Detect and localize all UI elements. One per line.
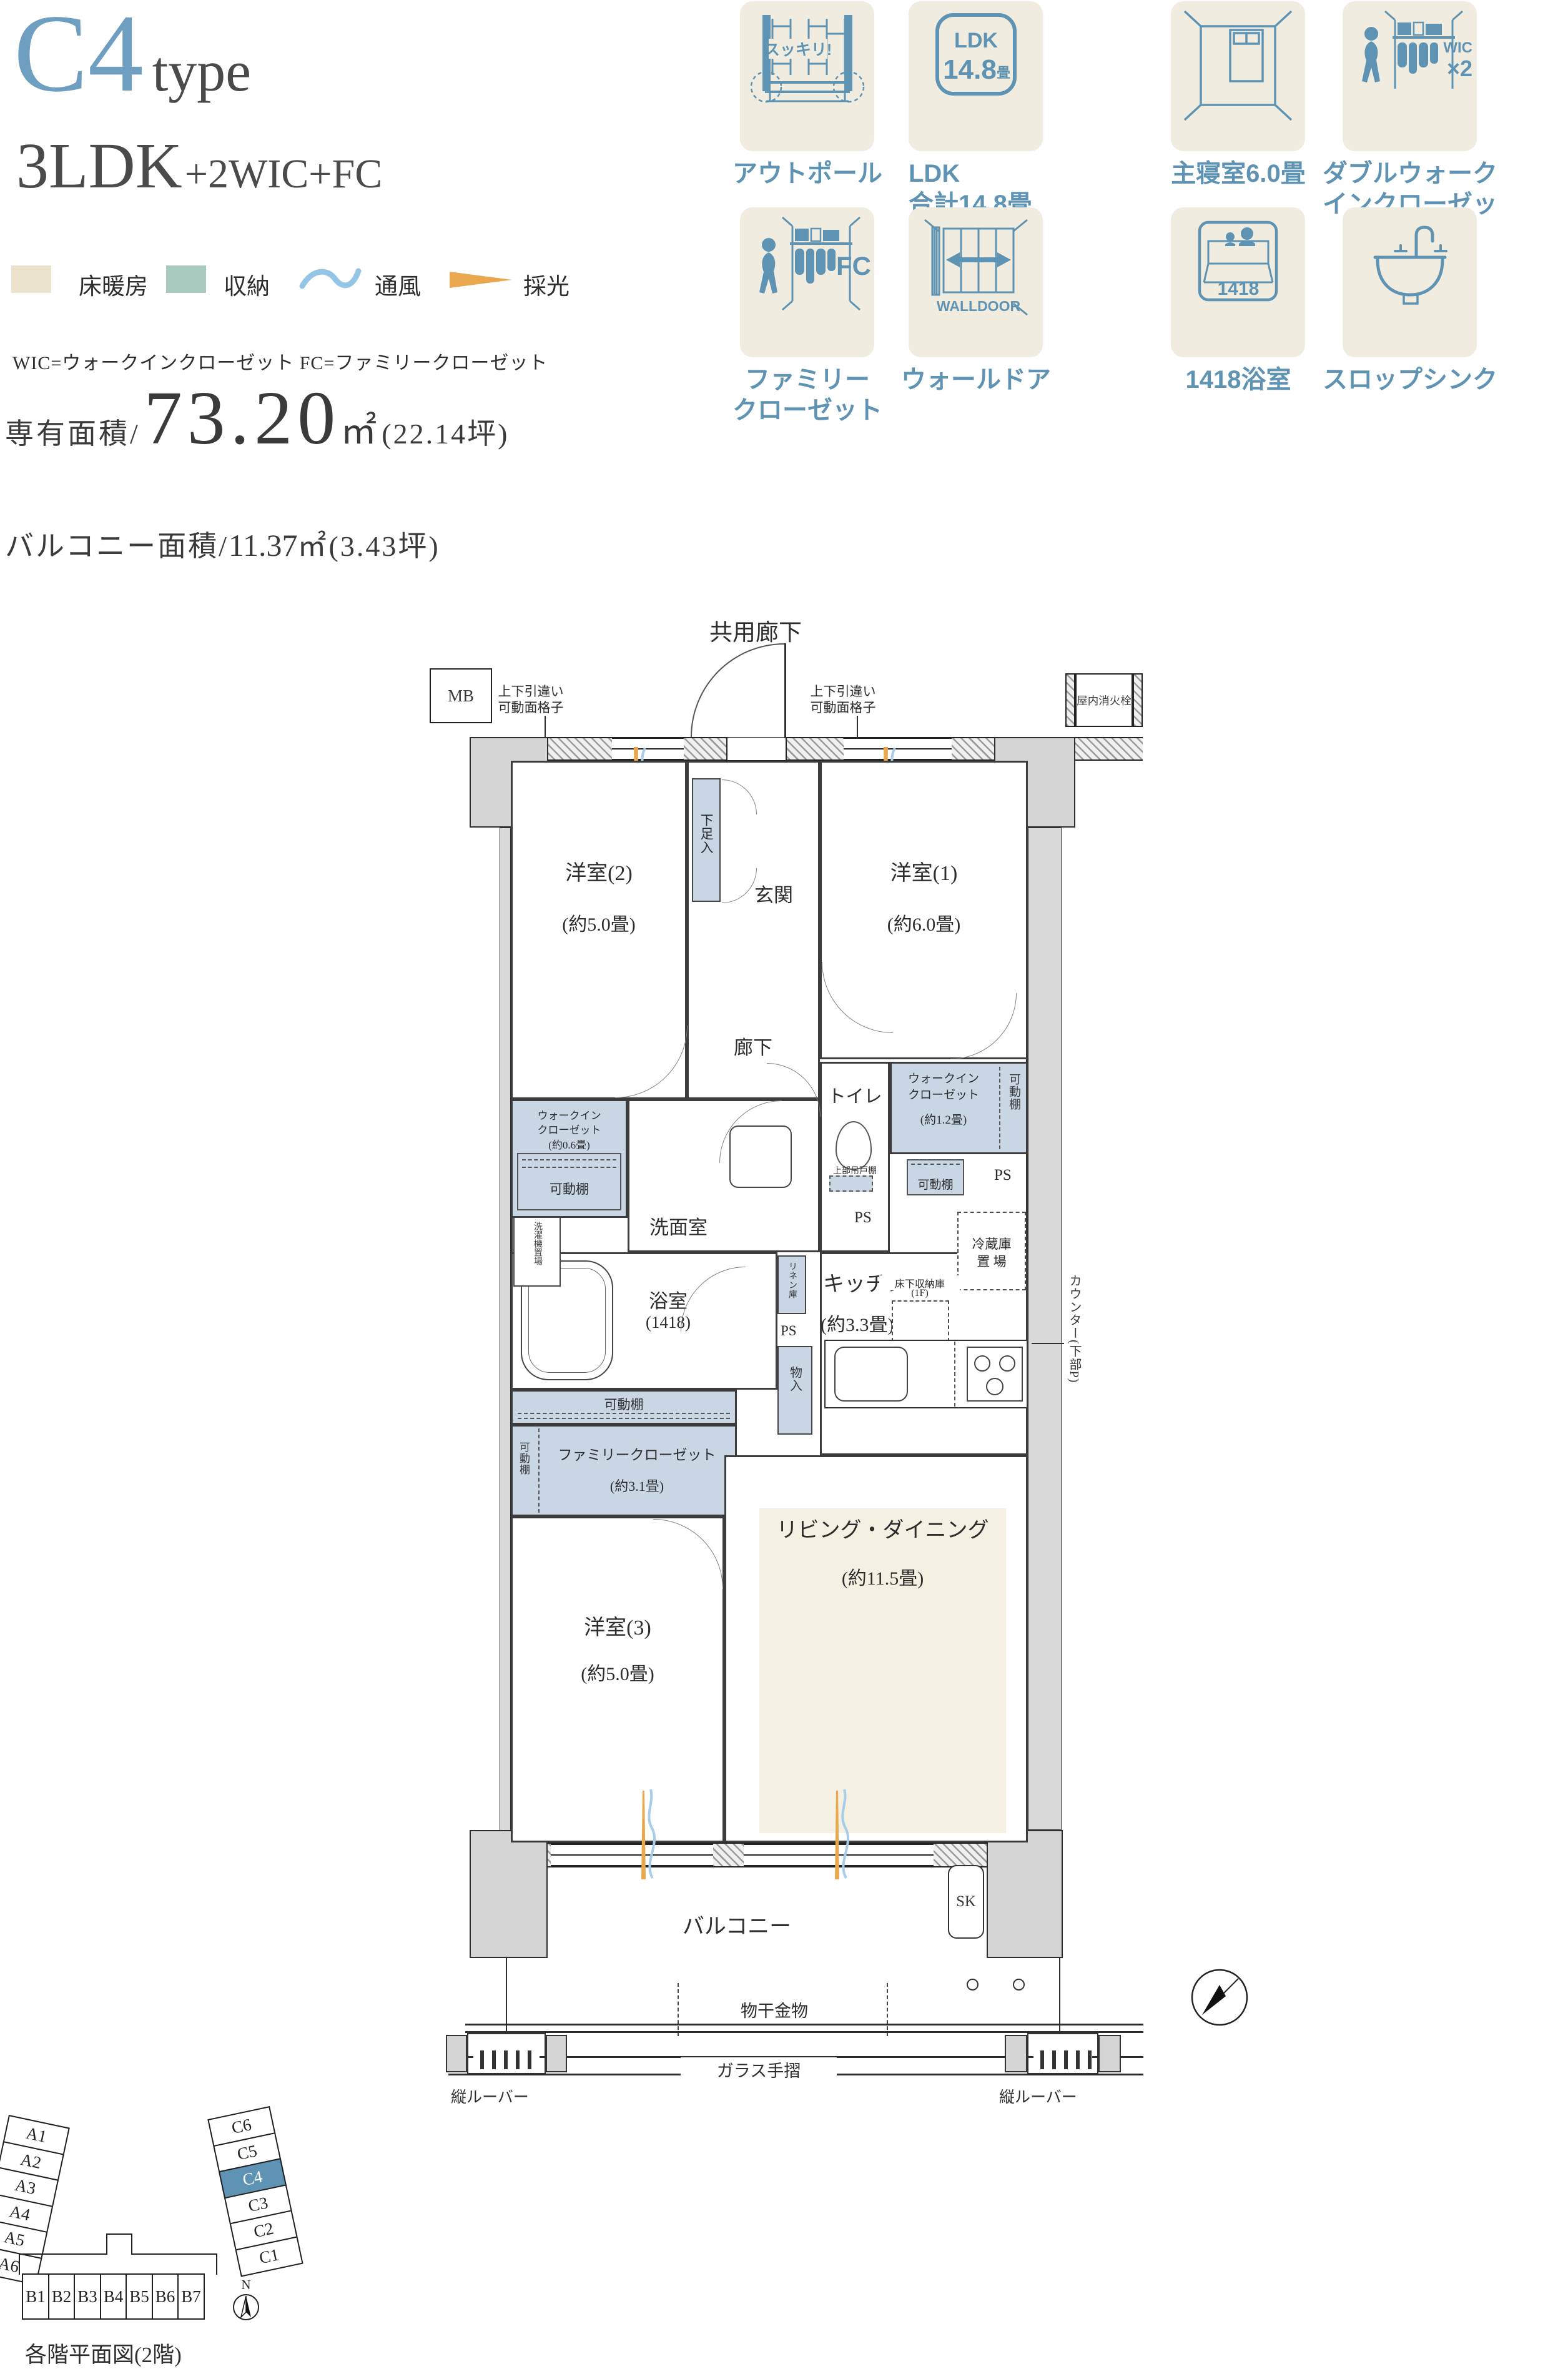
feature-label-outpole: アウトポール — [720, 159, 895, 189]
unit-cell-b4: B4 — [100, 2273, 127, 2320]
louver-left — [467, 2033, 546, 2074]
washroom-label: 洗面室 — [649, 1212, 708, 1240]
minimap-compass-icon — [232, 2293, 260, 2324]
counter-callout-line — [1032, 1343, 1064, 1344]
wic12-shelf-label: 可動棚 — [1005, 1073, 1022, 1110]
ps-label-linen: PS — [781, 1323, 797, 1339]
unit-b4-label: B4 — [104, 2287, 124, 2307]
feature-card-bedroom — [1171, 1, 1305, 151]
common-corridor-label: 共用廊下 — [662, 613, 849, 647]
drying-tick-left — [678, 1983, 679, 2036]
floor-heating-area — [759, 1508, 1006, 1833]
kitchen-size: (約3.3畳) — [821, 1309, 894, 1337]
wic06-size: (約0.6畳) — [511, 1136, 628, 1152]
balcony-area-label: バルコニー面積/ — [5, 523, 229, 565]
west-wall — [500, 828, 511, 1842]
louver-label-right: 縦ルーバー — [999, 2085, 1077, 2107]
feature-label-slopsink: スロップシンク — [1323, 365, 1497, 395]
fridge-label-1: 冷蔵庫 — [959, 1234, 1025, 1253]
fire-hydrant-label: 屋内消火栓 — [1077, 693, 1132, 708]
wic06-line2: クローゼット — [511, 1121, 628, 1137]
unit-a4-label: A4 — [7, 2202, 32, 2225]
wic12-shelf-dash-line — [999, 1067, 1000, 1149]
unit-b5-label: B5 — [129, 2287, 149, 2307]
living-dining-name: リビング・ダイニング — [759, 1513, 1006, 1543]
b-row: B1 B2 B3 B4 B5 B6 B7 — [22, 2273, 205, 2320]
feature-label-fc-line1: ファミリー — [720, 365, 895, 395]
wic12-size: (約1.2畳) — [890, 1110, 997, 1127]
grille-note-right-line2: 可動面格子 — [796, 700, 890, 716]
kitchen-stove — [967, 1347, 1023, 1402]
meter-box-label: MB — [448, 686, 474, 706]
vent-daylight-mark-room3 — [632, 1785, 659, 1882]
unit-cell-b1: B1 — [22, 2273, 49, 2320]
room3-name: 洋室(3) — [511, 1610, 724, 1641]
linen-closet: リネン庫 — [777, 1255, 806, 1314]
stove-burner-2 — [999, 1355, 1015, 1372]
walldoor-icon: WALLDOOR — [909, 207, 1043, 357]
svg-text:FC: FC — [836, 251, 871, 280]
svg-text:WIC: WIC — [1443, 39, 1472, 56]
slop-sink-icon — [1343, 207, 1477, 357]
toilet-upper-cabinet-box — [829, 1175, 873, 1192]
feature-label-ldk-line1: LDK — [909, 159, 1083, 189]
grille-pointer-left — [545, 716, 546, 738]
toilet-upper-cabinet-label: 上部吊戸棚 — [820, 1164, 890, 1177]
walk-in-closet-x2-icon: WIC ×2 — [1343, 1, 1477, 151]
feature-card-walldoor: WALLDOOR — [909, 207, 1043, 357]
svg-text:WALLDOOR: WALLDOOR — [937, 298, 1021, 314]
shoe-cabinet: 下足入 — [692, 778, 721, 902]
unit-c4-label: C4 — [241, 2167, 264, 2190]
svg-text:スッキリ!: スッキリ! — [764, 41, 832, 59]
room1-name: 洋室(1) — [820, 856, 1028, 886]
north-compass-icon — [1190, 1967, 1250, 2030]
kitchen-sink — [834, 1347, 908, 1402]
floorplan-page: { "title":{"code":"C4","word":"type","pl… — [0, 0, 1568, 2374]
balcony-area-line: バルコニー面積/ 11.37 ㎡ (3.43坪) — [5, 523, 440, 565]
louver-cap-3 — [1005, 2035, 1027, 2072]
counter-divider — [954, 1342, 955, 1407]
balcony-area-tsubo: (3.43坪) — [329, 523, 440, 565]
outpole-icon: スッキリ! — [740, 1, 874, 151]
hydrant-flank-right — [1133, 673, 1143, 727]
svg-text:畳: 畳 — [997, 65, 1010, 81]
c-wing: C6 C5 C4 C3 C2 C1 — [207, 2106, 303, 2277]
balcony-label: バルコニー — [643, 1909, 831, 1941]
wic12-line2: クローゼット — [890, 1086, 997, 1102]
floor-plan: 共用廊下 MB 屋内消火栓 上下引違い 可動面格子 上下引違い 可動面格子 — [0, 593, 1568, 2130]
grille-note-left-line2: 可動面格子 — [484, 700, 578, 716]
unit-cell-b6: B6 — [152, 2273, 179, 2320]
wic06-shelf-label: 可動棚 — [518, 1179, 620, 1198]
unit-c1-label: C1 — [257, 2245, 280, 2268]
shelf-box-right: 可動棚 — [907, 1159, 964, 1195]
feature-label-bedroom: 主寝室6.0畳 — [1151, 159, 1326, 189]
unit-a2-label: A2 — [19, 2149, 43, 2172]
small-closet: 物入 — [777, 1346, 812, 1435]
feature-label-fc: ファミリー クローゼット — [720, 365, 895, 426]
family-closet-icon: FC — [740, 207, 874, 357]
keymap-caption: 各階平面図(2階) — [25, 2337, 182, 2369]
feature-card-bath: 1418 — [1171, 207, 1305, 357]
drain-circle-2 — [1013, 1979, 1025, 1991]
shelf-box-right-dashes — [911, 1164, 960, 1170]
entrance-door-arc — [691, 643, 784, 737]
louver-cap-4 — [1098, 2035, 1121, 2072]
entrance-door-leaf — [784, 643, 786, 738]
louver-label-left: 縦ルーバー — [451, 2085, 529, 2107]
svg-text:LDK: LDK — [954, 29, 998, 52]
shelf-box-right-label: 可動棚 — [908, 1175, 963, 1192]
feature-card-slopsink — [1343, 207, 1477, 357]
unit-cell-b2: B2 — [48, 2273, 76, 2320]
feature-label-dwic-line1: ダブルウォーク — [1323, 159, 1497, 189]
wic06-shelf-dashes — [522, 1159, 616, 1168]
louver-cap-1 — [446, 2035, 467, 2072]
unit-c2-label: C2 — [252, 2218, 275, 2242]
counter-label: カウンター(下部P) — [1065, 1274, 1083, 1437]
stove-burner-1 — [974, 1355, 990, 1372]
small-closet-label: 物入 — [786, 1366, 804, 1392]
drying-tick-right — [887, 1983, 888, 2036]
family-closet-size: (約3.1畳) — [543, 1475, 731, 1495]
entrance-label: 玄関 — [754, 879, 793, 908]
slop-sink-label: SK — [956, 1893, 976, 1911]
fc-shelf-band-label: 可動棚 — [511, 1395, 737, 1413]
vent-daylight-mark-living — [826, 1785, 853, 1882]
minimap-north-label: N — [232, 2277, 260, 2293]
slop-sink-fixture: SK — [948, 1865, 984, 1939]
fc-left-shelf-dash — [538, 1428, 540, 1513]
unit-b6-label: B6 — [155, 2287, 175, 2307]
shoe-cabinet-label: 下足入 — [697, 813, 716, 854]
glass-rail-label: ガラス手摺 — [681, 2057, 837, 2082]
balcony-side-line-right — [1059, 1958, 1060, 2033]
room1-size: (約6.0畳) — [820, 909, 1028, 936]
grille-note-right-line1: 上下引違い — [796, 683, 890, 700]
main-bedroom-icon — [1171, 1, 1305, 151]
louver-right — [1027, 2033, 1098, 2074]
laundry-label: 洗濯機置場 — [531, 1222, 543, 1265]
unit-a1-label: A1 — [24, 2124, 49, 2147]
fridge-label-2: 置 場 — [959, 1252, 1025, 1270]
east-wall — [1028, 828, 1062, 1830]
grille-note-right: 上下引違い 可動面格子 — [796, 683, 890, 716]
feature-card-ldk: LDK 14.8 畳 — [909, 1, 1043, 151]
grille-pointer-right — [857, 716, 858, 738]
laundry-space: 洗濯機置場 — [513, 1217, 561, 1287]
living-dining-size: (約11.5畳) — [759, 1563, 1006, 1590]
pillar-bottom-right — [987, 1830, 1063, 1958]
wic06-line1: ウォークイン — [511, 1107, 628, 1122]
room2-size: (約5.0畳) — [511, 909, 687, 936]
grille-note-left-line1: 上下引違い — [484, 683, 578, 700]
fridge-space: 冷蔵庫 置 場 — [957, 1212, 1026, 1290]
ps-label-mid: PS — [854, 1209, 872, 1227]
corridor-notch — [106, 2233, 132, 2255]
unit-a3-label: A3 — [13, 2175, 37, 2198]
family-closet — [511, 1425, 737, 1516]
meter-box: MB — [430, 668, 492, 723]
unit-cell-b3: B3 — [74, 2273, 101, 2320]
balcony-rail-line-1 — [465, 2024, 1143, 2025]
unit-cell-b7: B7 — [177, 2273, 205, 2320]
svg-text:1418: 1418 — [1218, 279, 1260, 299]
feature-label-fc-line2: クローゼット — [720, 395, 895, 426]
pillar-bottom-left — [470, 1830, 548, 1958]
bathtub-1418-icon: 1418 — [1171, 207, 1305, 357]
unit-b7-label: B7 — [181, 2287, 201, 2307]
svg-text:14.8: 14.8 — [943, 54, 997, 85]
louver-cap-2 — [546, 2035, 567, 2072]
building-key-map: A1 A2 A3 A4 A5 A6 C6 C5 C4 C3 C2 C1 B1 B… — [0, 2080, 325, 2374]
unit-b2-label: B2 — [52, 2287, 72, 2307]
ps-label-right: PS — [994, 1167, 1012, 1184]
wic12-line1: ウォークイン — [890, 1069, 997, 1086]
fire-hydrant-box: 屋内消火栓 — [1075, 673, 1133, 727]
linen-closet-label: リネン庫 — [786, 1262, 798, 1299]
unit-a5-label: A5 — [2, 2227, 27, 2250]
feature-card-outpole: スッキリ! — [740, 1, 874, 151]
ldk-size-icon: LDK 14.8 畳 — [909, 1, 1043, 151]
entrance-opening — [726, 738, 787, 760]
balcony-area-value: 11.37 — [229, 527, 298, 563]
feature-label-walldoor: ウォールドア — [889, 365, 1063, 395]
stove-burner-3 — [986, 1378, 1003, 1395]
fc-shelf-band-dashes — [518, 1413, 730, 1419]
unit-c5-label: C5 — [235, 2141, 259, 2164]
fc-left-shelf-label: 可動棚 — [516, 1442, 531, 1475]
unit-b1-label: B1 — [26, 2287, 46, 2307]
grille-note-left: 上下引違い 可動面格子 — [484, 683, 578, 716]
feature-grid: スッキリ! アウトポール LDK 14.8 畳 LDK 合計14.8畳 主寝室6… — [0, 0, 1568, 450]
unit-b3-label: B3 — [77, 2287, 97, 2307]
hydrant-flank-left — [1065, 673, 1075, 727]
corridor-outline — [19, 2253, 217, 2275]
feature-label-bath: 1418浴室 — [1151, 365, 1326, 395]
room3-size: (約5.0畳) — [511, 1658, 724, 1686]
toilet-label: トイレ — [820, 1082, 890, 1108]
family-closet-name: ファミリークローゼット — [543, 1443, 731, 1464]
balcony-side-line-left — [506, 1958, 507, 2033]
feature-card-fc: FC — [740, 207, 874, 357]
drain-circle-1 — [967, 1979, 979, 1991]
svg-text:×2: ×2 — [1447, 56, 1472, 81]
drying-hardware-label: 物干金物 — [699, 1997, 849, 2022]
hallway-label: 廊下 — [691, 1032, 816, 1060]
feature-card-dwic: WIC ×2 — [1343, 1, 1477, 151]
underfloor-label-2: (1F) — [879, 1288, 960, 1299]
balcony-area-unit: ㎡ — [298, 523, 327, 565]
unit-c6-label: C6 — [230, 2115, 253, 2138]
unit-cell-b5: B5 — [126, 2273, 153, 2320]
wic06-shelf-box: 可動棚 — [517, 1153, 621, 1210]
room2-name: 洋室(2) — [511, 856, 687, 886]
unit-a6-label: A6 — [0, 2253, 21, 2277]
unit-c3-label: C3 — [247, 2193, 270, 2216]
